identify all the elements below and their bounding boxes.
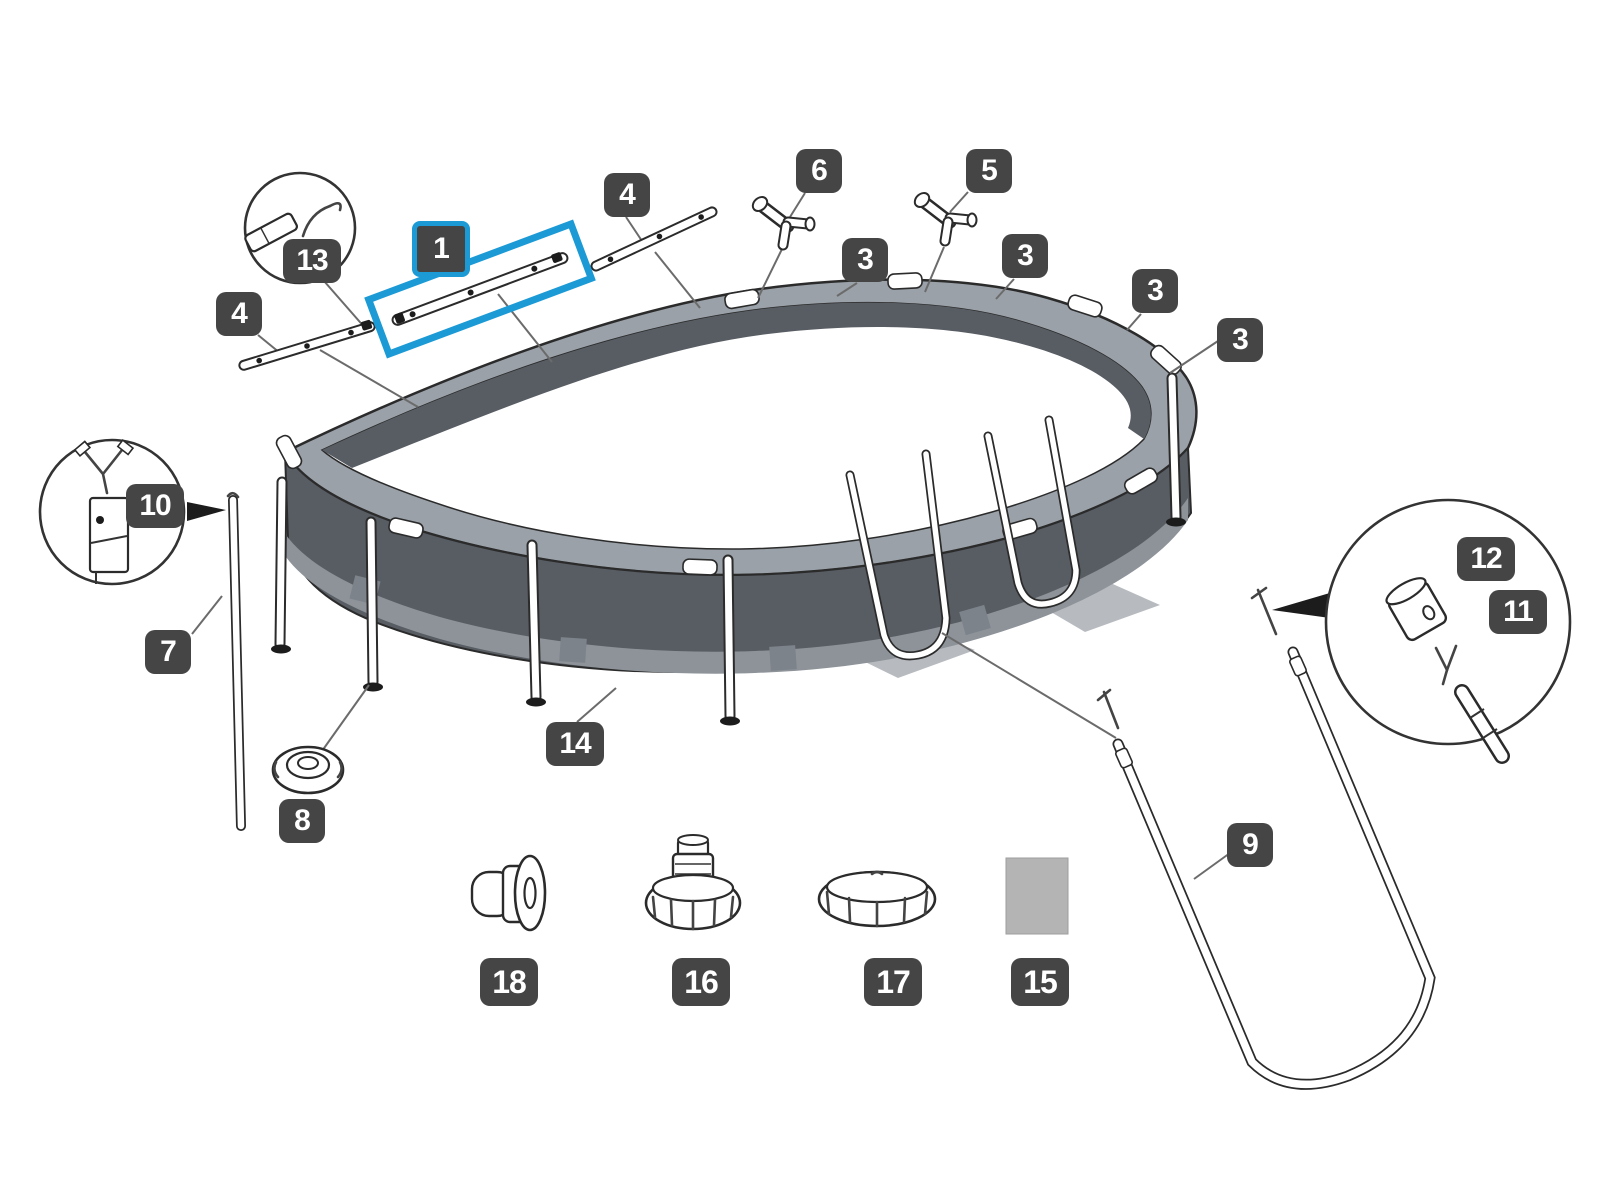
callout-part-14[interactable]: 14 [546,722,604,766]
callout-part-10[interactable]: 10 [126,484,184,528]
vertical-leg-part-7 [228,493,241,826]
leg-top-detail [90,498,128,584]
callout-part-16[interactable]: 16 [672,958,730,1006]
top-rail-part-1[interactable] [369,224,592,354]
valve-part-16 [646,835,740,929]
callout-part-6[interactable]: 6 [796,149,842,193]
cap-part-17 [819,872,935,926]
t-connector-part-6 [750,194,814,245]
repair-patch-part-15 [1006,858,1068,934]
base-foot-part-8 [273,747,343,793]
callout-part-17[interactable]: 17 [864,958,922,1006]
callout-part-3a[interactable]: 3 [842,238,888,282]
callout-part-5[interactable]: 5 [966,149,1012,193]
t-connector-part-5 [912,190,976,241]
callout-part-18[interactable]: 18 [480,958,538,1006]
callout-part-4-left[interactable]: 4 [216,292,262,336]
callout-part-3c[interactable]: 3 [1132,269,1178,313]
magnifier-arrow-left [187,502,226,521]
pool-parts-diagram: 1 4 4 6 5 3 3 3 3 13 10 7 8 14 9 12 11 1… [0,0,1600,1200]
callout-part-8[interactable]: 8 [279,799,325,843]
pool-illustration [271,273,1196,726]
strainer-part-18 [472,856,545,930]
callout-part-15[interactable]: 15 [1011,958,1069,1006]
callout-part-3d[interactable]: 3 [1217,318,1263,362]
callout-part-1[interactable]: 1 [412,221,470,277]
callout-part-4-top[interactable]: 4 [604,173,650,217]
callout-part-13[interactable]: 13 [283,239,341,283]
callout-part-12[interactable]: 12 [1457,537,1515,581]
callout-part-3b[interactable]: 3 [1002,234,1048,278]
callout-part-11[interactable]: 11 [1489,590,1547,634]
cross-rail-part-4-top [595,209,713,268]
callout-part-7[interactable]: 7 [145,630,191,674]
callout-part-9[interactable]: 9 [1227,823,1273,867]
